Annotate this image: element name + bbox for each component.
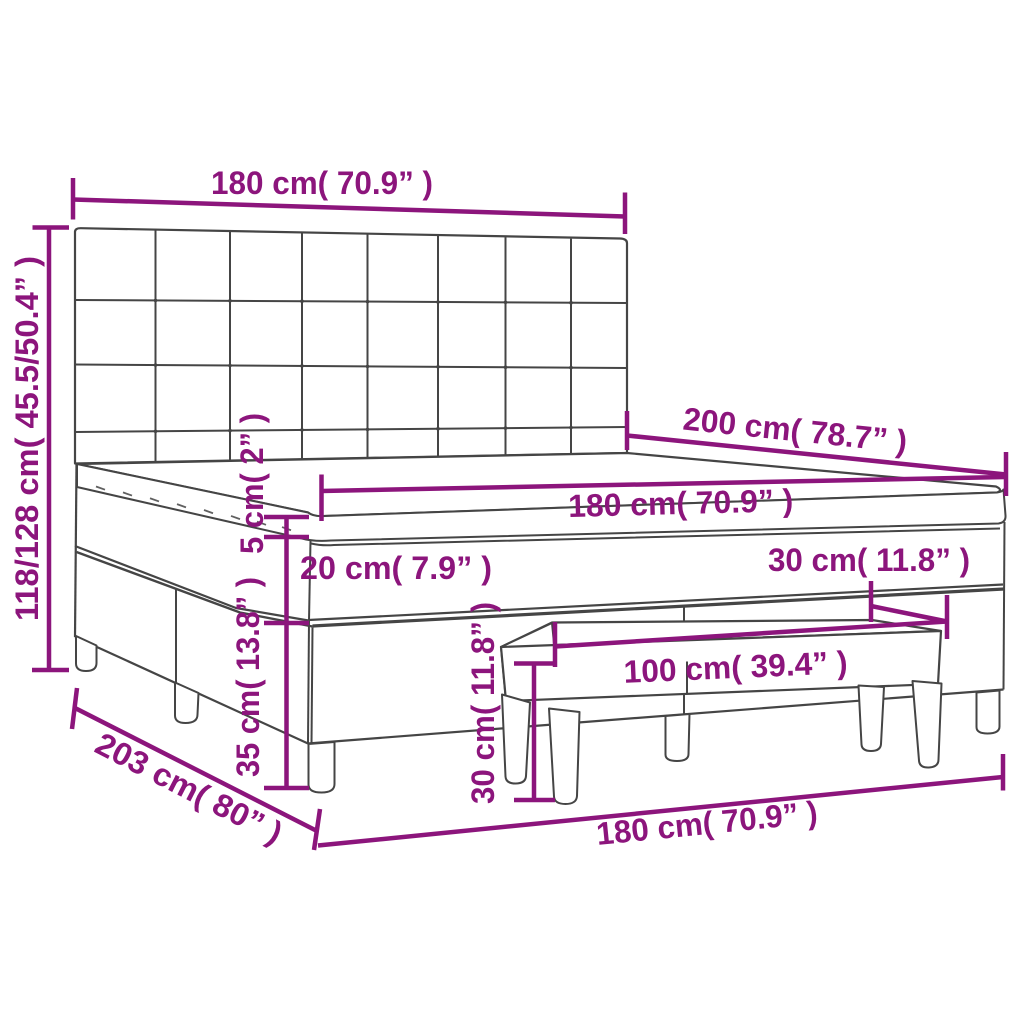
svg-text:5 cm( 2” ): 5 cm( 2” ) [234, 413, 270, 554]
svg-text:35 cm( 13.8” ): 35 cm( 13.8” ) [230, 577, 266, 777]
svg-text:30 cm( 11.8” ): 30 cm( 11.8” ) [768, 542, 970, 578]
svg-text:118/128 cm( 45.5/50.4” ): 118/128 cm( 45.5/50.4” ) [9, 256, 45, 621]
svg-text:180 cm( 70.9” ): 180 cm( 70.9” ) [568, 482, 794, 524]
svg-text:20 cm( 7.9” ): 20 cm( 7.9” ) [300, 550, 492, 586]
svg-text:180 cm( 70.9” ): 180 cm( 70.9” ) [211, 165, 433, 201]
svg-text:30 cm( 11.8” ): 30 cm( 11.8” ) [465, 602, 501, 804]
